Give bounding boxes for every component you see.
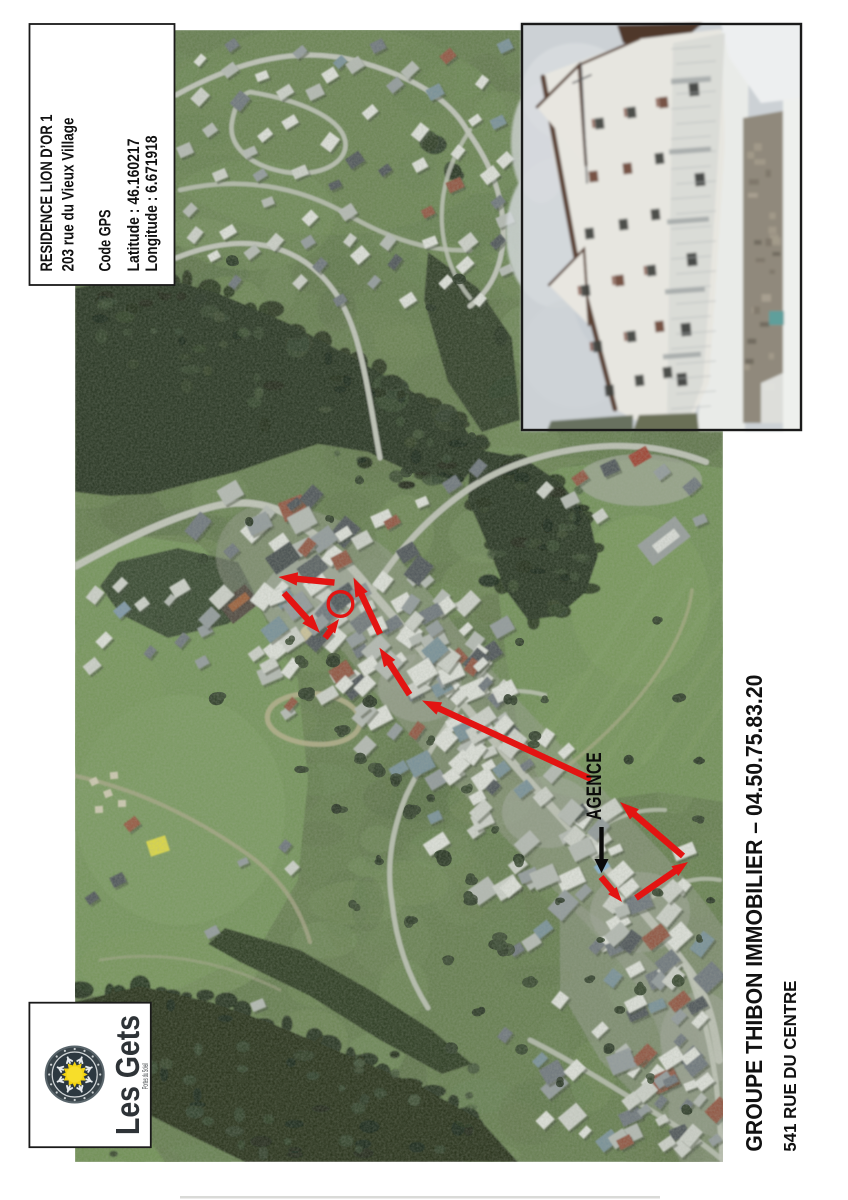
- svg-text:Portes du Soleil: Portes du Soleil: [141, 1063, 150, 1089]
- svg-text:541 RUE DU CENTRE: 541 RUE DU CENTRE: [780, 981, 800, 1152]
- svg-text:Code GPS: Code GPS: [96, 210, 115, 272]
- svg-text:Longitude : 6.671918: Longitude : 6.671918: [142, 136, 161, 272]
- svg-text:GROUPE THIBON IMMOBILIER – 04.: GROUPE THIBON IMMOBILIER – 04.50.75.83.2…: [741, 675, 767, 1152]
- svg-text:AGENCE: AGENCE: [583, 752, 606, 820]
- svg-text:RESIDENCE LION D’OR 1: RESIDENCE LION D’OR 1: [37, 115, 56, 272]
- svg-text:203 rue du Vieux Village: 203 rue du Vieux Village: [59, 118, 78, 272]
- svg-text:Latitude : 46.160217: Latitude : 46.160217: [124, 139, 143, 272]
